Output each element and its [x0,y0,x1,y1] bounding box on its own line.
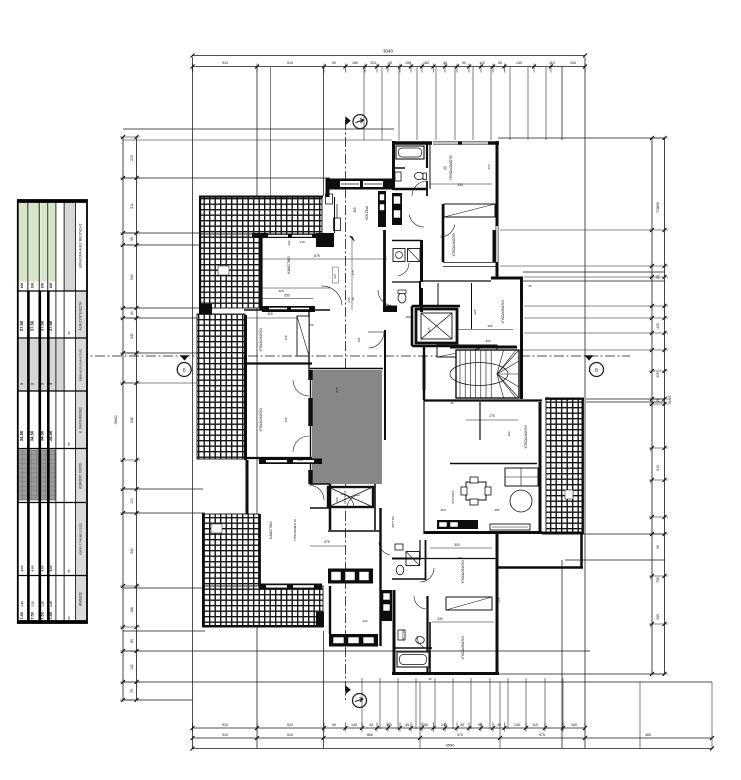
svg-text:25: 25 [656,398,660,402]
svg-text:340: 340 [570,61,576,65]
svg-text:140: 140 [441,723,447,727]
svg-text:37.50: 37.50 [19,320,24,331]
svg-text:37.50: 37.50 [40,320,45,331]
svg-text:ΥΠΝΟΔΩΜΑΤΙΟ: ΥΠΝΟΔΩΜΑΤΙΟ [461,636,465,660]
svg-text:140: 140 [130,664,134,670]
svg-text:306: 306 [485,339,490,343]
svg-text:910: 910 [222,723,228,727]
svg-text:3: 3 [49,383,53,385]
svg-text:37.50: 37.50 [40,611,45,622]
svg-text:Κ. ΚΑΛΥΜΜΕΝΕΣ: Κ. ΚΑΛΥΜΜΕΝΕΣ [79,407,83,433]
svg-text:(6): (6) [443,166,447,170]
svg-text:325: 325 [427,327,431,332]
svg-text:25: 25 [528,284,532,288]
svg-text:1.20: 1.20 [49,601,53,607]
svg-text:37.50: 37.50 [30,320,35,331]
svg-text:188: 188 [130,607,134,613]
svg-text:300: 300 [454,543,460,547]
svg-text:675: 675 [314,254,320,258]
svg-text:750: 750 [656,577,660,583]
svg-text:ΥΠΝΟΔΩΜΑΤΙΟ: ΥΠΝΟΔΩΜΑΤΙΟ [259,408,263,432]
svg-text:ΑΝΟΔΟΣ: ΑΝΟΔΟΣ [79,592,83,606]
svg-text:545: 545 [130,417,134,423]
svg-text:110: 110 [532,723,538,727]
svg-text:100: 100 [49,283,53,289]
svg-text:m²: m² [67,331,71,335]
svg-text:ΥΠΝΟΔΩΜΑΤΙΟ: ΥΠΝΟΔΩΜΑΤΙΟ [524,425,528,449]
svg-text:ΚΟΥΖΙΝΑ: ΚΟΥΖΙΝΑ [365,205,369,220]
svg-text:370: 370 [351,270,355,275]
svg-text:100: 100 [20,283,24,289]
svg-text:575: 575 [539,733,545,737]
svg-text:252: 252 [440,508,445,512]
svg-text:3: 3 [20,383,24,385]
svg-text:34.50: 34.50 [19,430,24,441]
svg-text:37.50: 37.50 [19,611,24,622]
svg-text:510: 510 [656,465,660,471]
svg-text:m²: m² [67,616,71,620]
svg-text:55: 55 [130,237,134,241]
svg-text:45: 45 [388,61,392,65]
svg-text:ΕΣΤ: ΕΣΤ [333,273,337,278]
svg-text:ΥΠΝΟΔΩΜΑΤΙΟ: ΥΠΝΟΔΩΜΑΤΙΟ [293,518,297,541]
svg-text:3590: 3590 [446,743,456,748]
svg-text:330: 330 [437,617,443,621]
svg-text:ΚΑΘΙΣΤΙΚΟ: ΚΑΘΙΣΤΙΚΟ [269,521,273,539]
svg-text:34.50: 34.50 [48,430,53,441]
svg-text:315: 315 [487,164,491,169]
svg-text:45: 45 [405,723,409,727]
svg-text:100: 100 [41,283,45,289]
svg-text:480: 480 [645,733,651,737]
svg-text:34.50: 34.50 [40,430,45,441]
svg-text:570: 570 [457,733,463,737]
svg-text:318: 318 [284,335,288,340]
svg-text:140: 140 [386,723,392,727]
svg-text:9.60: 9.60 [20,565,24,571]
svg-text:910: 910 [222,61,228,65]
svg-text:140: 140 [351,723,357,727]
svg-text:34.50: 34.50 [30,430,35,441]
svg-text:180: 180 [405,315,410,319]
svg-text:340: 340 [571,723,577,727]
svg-text:420: 420 [656,323,660,329]
svg-text:m²: m² [67,442,71,446]
svg-text:90: 90 [462,61,466,65]
svg-text:280: 280 [656,614,660,620]
svg-text:80: 80 [656,275,660,279]
svg-text:1.20: 1.20 [41,601,45,607]
svg-text:45: 45 [460,723,464,727]
svg-text:ΧΩΡΟΙ ΣΤΑΘΜΕΥΣΕΩΣ: ΧΩΡΟΙ ΣΤΑΘΜΕΥΣΕΩΣ [79,523,83,556]
svg-text:330: 330 [457,183,463,187]
svg-text:910: 910 [287,733,293,737]
svg-text:910: 910 [287,61,293,65]
svg-text:ΥΠΝΟΔΩΜΑΤΙΟ: ΥΠΝΟΔΩΜΑΤΙΟ [501,300,505,324]
svg-text:37.50: 37.50 [48,611,53,622]
svg-text:340: 340 [130,548,134,554]
svg-text:1.20: 1.20 [31,601,35,607]
svg-text:ΥΠΝΟΔΩΜΑΤΙΟ: ΥΠΝΟΔΩΜΑΤΙΟ [452,233,456,257]
svg-text:9.60: 9.60 [41,565,45,571]
svg-text:90: 90 [478,723,482,727]
svg-text:26: 26 [546,396,550,400]
svg-text:ΑΞΙΑ ΣΥΝΤΕΛΕΣΤΗ: ΑΞΙΑ ΣΥΝΤΕΛΕΣΤΗ [79,301,83,331]
svg-text:180: 180 [352,61,358,65]
svg-text:95: 95 [656,545,660,549]
svg-text:1.20: 1.20 [20,601,24,607]
svg-text:85: 85 [130,639,134,643]
svg-text:300: 300 [267,312,273,316]
svg-text:ΚΟΥΖΙΝΑ: ΚΟΥΖΙΝΑ [451,491,455,504]
svg-text:ΥΠΝΟΔΩΜΑΤΙΟ: ΥΠΝΟΔΩΜΑΤΙΟ [259,328,263,352]
svg-text:860: 860 [367,733,373,737]
svg-text:ΥΠΝΟΔΩΜΑΤΙΟ: ΥΠΝΟΔΩΜΑΤΙΟ [449,155,453,180]
svg-text:100: 100 [130,498,134,504]
svg-text:90: 90 [332,61,336,65]
svg-text:3165: 3165 [667,395,672,405]
svg-text:140: 140 [299,240,304,244]
svg-text:675: 675 [324,540,330,544]
svg-text:ΔΟΜΗΣΙΜΑ ΑΝΕΥ ΘΕΩΡΗΣΗΣ: ΔΟΜΗΣΙΜΑ ΑΝΕΥ ΘΕΩΡΗΣΗΣ [79,224,83,269]
svg-text:318: 318 [284,417,288,422]
svg-text:910: 910 [222,733,228,737]
svg-text:910: 910 [287,723,293,727]
svg-text:330: 330 [457,556,462,560]
svg-text:30: 30 [351,297,355,301]
svg-text:40: 40 [130,311,134,315]
svg-text:9.60: 9.60 [31,565,35,571]
svg-text:425: 425 [278,289,283,293]
svg-text:ΕΜΒΑΔΟΝ ΑΝΑΛΟΓΙΑΣ: ΕΜΒΑΔΟΝ ΑΝΑΛΟΓΙΑΣ [79,349,83,382]
svg-text:B: B [595,368,598,373]
svg-text:730: 730 [656,207,660,213]
svg-text:45: 45 [498,61,502,65]
svg-text:ΚΑΘΙΣΤΙΚΟ: ΚΑΘΙΣΤΙΚΟ [287,256,291,274]
svg-text:45: 45 [369,723,373,727]
svg-text:275: 275 [489,414,495,418]
svg-text:25: 25 [450,401,454,405]
svg-text:540: 540 [130,274,134,280]
svg-text:140: 140 [516,61,522,65]
svg-text:305: 305 [487,324,492,328]
svg-text:ΚΟΙΝΟΧΡ. ΧΩΡΟΙ: ΚΟΙΝΟΧΡ. ΧΩΡΟΙ [79,463,83,489]
svg-text:45: 45 [497,723,501,727]
svg-text:45: 45 [443,61,447,65]
svg-text:385: 385 [494,508,499,512]
svg-text:330: 330 [297,458,302,462]
svg-text:25: 25 [428,677,432,681]
svg-text:490: 490 [656,202,660,208]
svg-text:3600: 3600 [113,415,118,425]
svg-text:140: 140 [514,723,520,727]
svg-text:B: B [183,368,186,373]
svg-text:3040: 3040 [383,49,394,54]
svg-text:3: 3 [31,383,35,385]
svg-text:110: 110 [549,61,555,65]
svg-text:37.50: 37.50 [30,611,35,622]
svg-text:90: 90 [332,723,336,727]
svg-text:325: 325 [656,372,660,378]
svg-text:ΥΠΝΟΔΩΜΑΤΙΟ: ΥΠΝΟΔΩΜΑΤΙΟ [461,560,465,584]
svg-text:511: 511 [130,203,134,209]
svg-text:205: 205 [130,155,134,161]
svg-text:325: 325 [473,309,477,314]
svg-text:ΚΟΥΖΙΝΑ: ΚΟΥΖΙΝΑ [343,491,347,504]
svg-text:340: 340 [130,333,134,339]
svg-text:650: 650 [284,294,290,298]
svg-text:312: 312 [362,619,367,623]
svg-text:110: 110 [370,61,376,65]
svg-text:9.60: 9.60 [49,565,53,571]
svg-text:292: 292 [287,240,291,245]
svg-text:305: 305 [353,207,357,213]
svg-text:m²: m² [67,569,71,573]
svg-text:675: 675 [335,387,339,392]
svg-text:ΛΟΥΤΡΟ: ΛΟΥΤΡΟ [401,628,405,640]
svg-text:300: 300 [335,497,339,502]
svg-text:700: 700 [308,323,313,327]
svg-text:75: 75 [130,689,134,693]
svg-text:155: 155 [422,723,428,727]
svg-text:ΛΟΥΤΡΟ: ΛΟΥΤΡΟ [391,515,395,527]
svg-text:3: 3 [41,383,45,385]
svg-text:315: 315 [497,597,501,602]
svg-text:245: 245 [347,297,351,302]
svg-text:37.50: 37.50 [48,320,53,331]
svg-text:180: 180 [423,61,429,65]
svg-text:240: 240 [357,337,361,342]
svg-text:155: 155 [405,61,411,65]
svg-text:110: 110 [479,61,485,65]
svg-text:300: 300 [279,195,284,199]
svg-text:100: 100 [31,283,35,289]
svg-text:303: 303 [507,431,511,436]
